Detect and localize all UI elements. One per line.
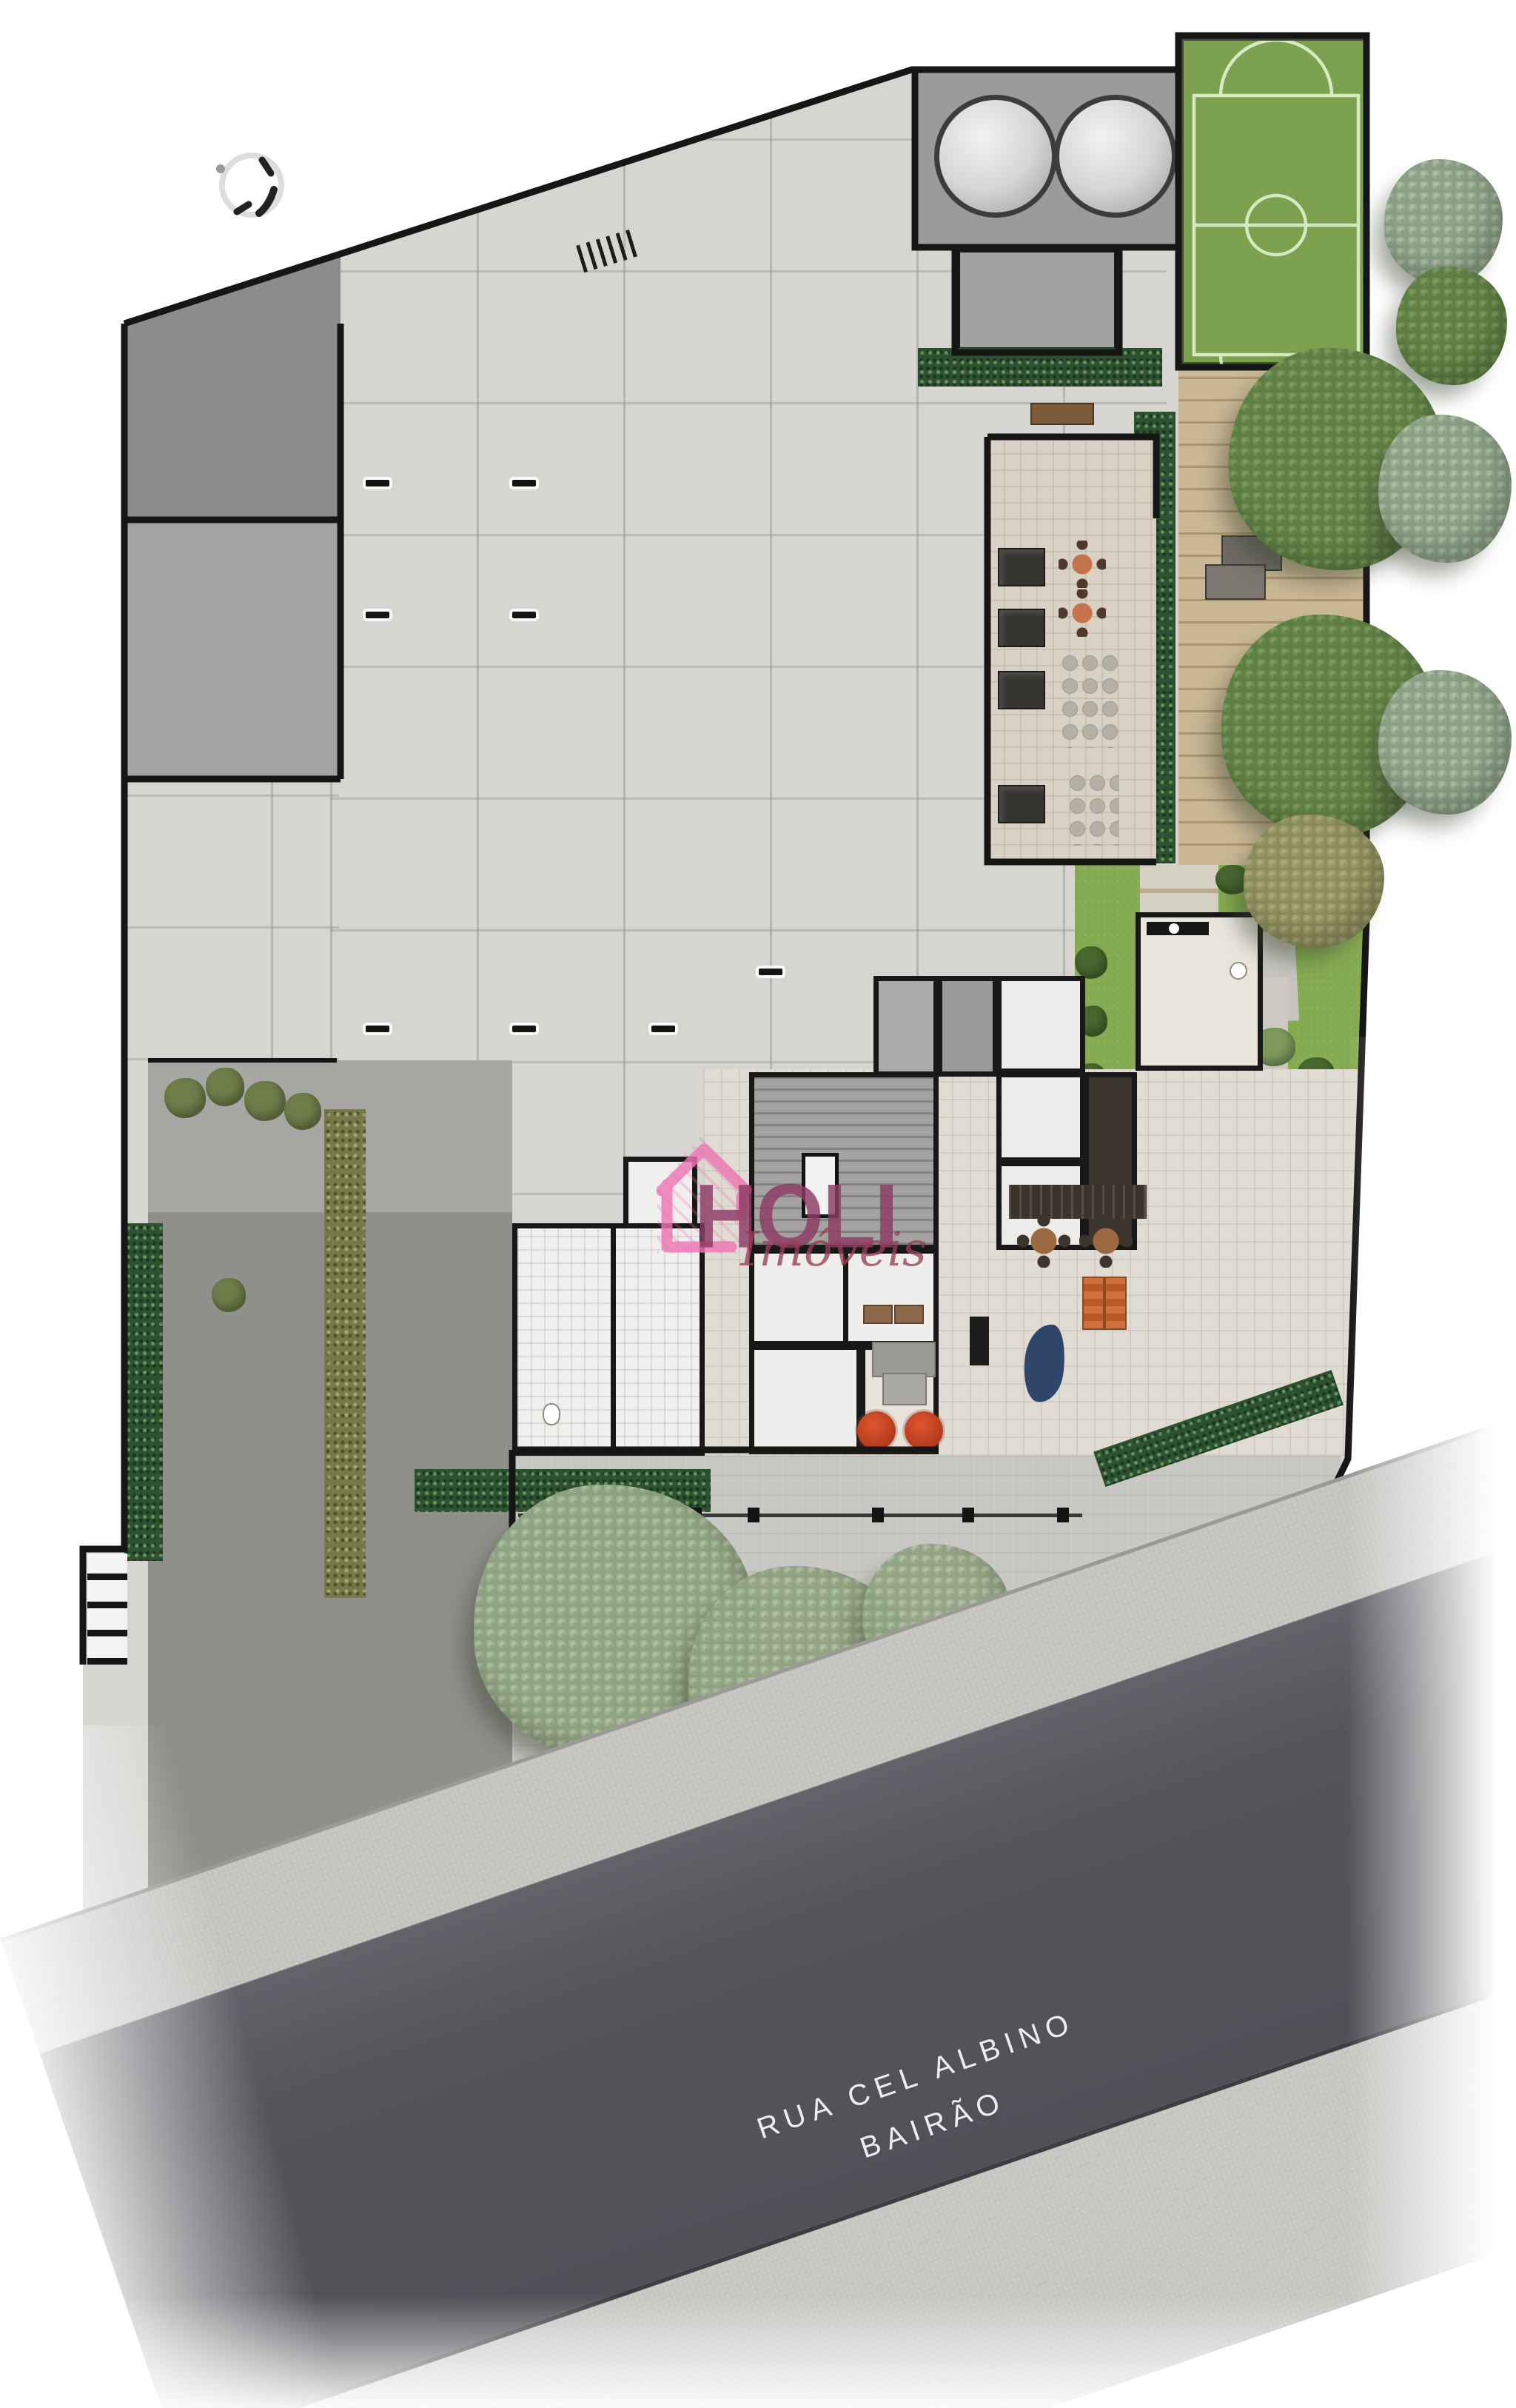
tree-icon	[1396, 267, 1507, 385]
site-plan-canvas: RUA CEL ALBINO BAIRÃO HOLI Imóveis	[0, 0, 1516, 2408]
north-arrow-icon	[206, 144, 295, 231]
tree-icon	[1244, 815, 1384, 948]
tree-icon	[1378, 415, 1512, 563]
watermark-tagline: Imóveis	[740, 1226, 927, 1274]
tree-icon	[1378, 670, 1512, 815]
